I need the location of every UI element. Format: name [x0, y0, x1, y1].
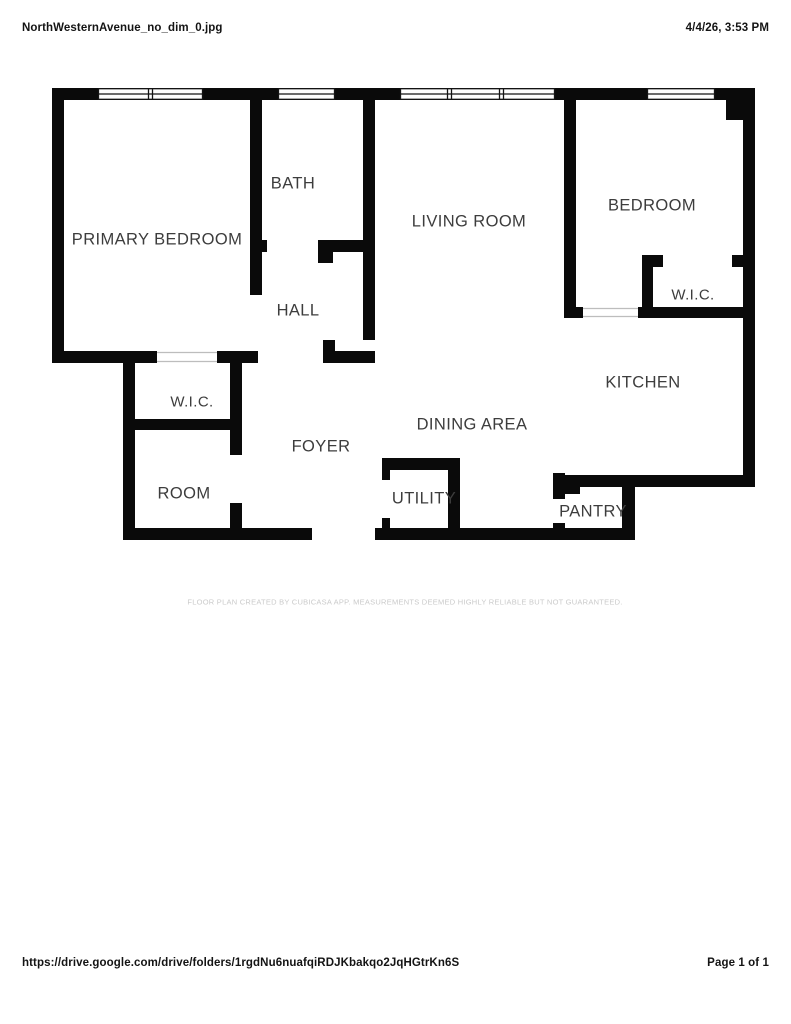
room-label-wic-bedroom: W.I.C. — [671, 287, 714, 304]
room-label-kitchen: KITCHEN — [605, 374, 680, 393]
room-label-room: ROOM — [158, 485, 211, 504]
room-label-foyer: FOYER — [292, 438, 351, 457]
source-url: https://drive.google.com/drive/folders/1… — [22, 957, 459, 969]
room-label-utility: UTILITY — [392, 490, 456, 509]
room-label-primary-bedroom: PRIMARY BEDROOM — [72, 231, 242, 250]
room-label-bedroom: BEDROOM — [608, 197, 696, 216]
page-indicator: Page 1 of 1 — [707, 957, 769, 969]
floor-plan: PRIMARY BEDROOMBATHHALLLIVING ROOMBEDROO… — [0, 0, 791, 1024]
room-label-wic-left: W.I.C. — [170, 394, 213, 411]
room-label-living-room: LIVING ROOM — [412, 213, 526, 232]
room-label-pantry: PANTRY — [559, 503, 627, 522]
room-label-bath: BATH — [271, 175, 315, 194]
floor-plan-drawing — [0, 0, 791, 1024]
disclaimer-text: FLOOR PLAN CREATED BY CUBICASA APP. MEAS… — [187, 598, 622, 607]
room-label-hall: HALL — [277, 302, 320, 321]
walls-group — [52, 88, 755, 540]
room-label-dining-area: DINING AREA — [417, 416, 528, 435]
